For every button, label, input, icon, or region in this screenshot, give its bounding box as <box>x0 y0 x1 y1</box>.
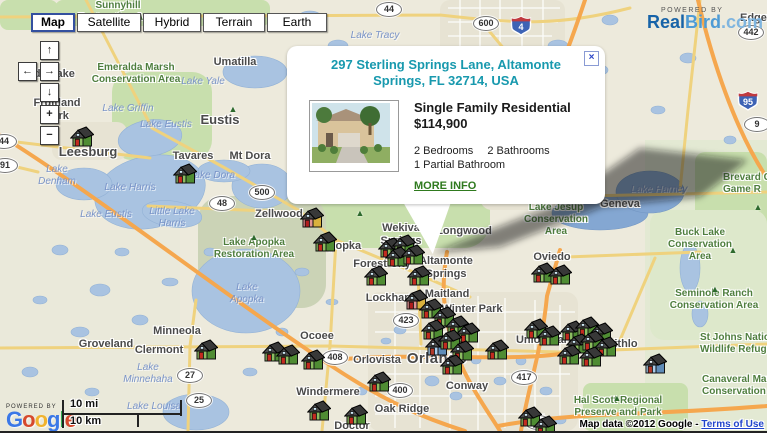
svg-text:95: 95 <box>743 97 753 107</box>
listing-marker[interactable] <box>579 346 603 370</box>
map-type-button-terrain[interactable]: Terrain <box>203 13 265 32</box>
map-type-button-earth[interactable]: Earth <box>267 13 327 32</box>
route-shield-408: 408 <box>322 350 348 365</box>
route-shield-25: 25 <box>186 393 212 408</box>
listing-marker[interactable] <box>301 349 325 373</box>
interstate-shield-95: 95 <box>738 90 759 116</box>
listing-marker[interactable] <box>643 353 667 377</box>
map-type-button-hybrid[interactable]: Hybrid <box>143 13 201 32</box>
listing-marker[interactable] <box>173 163 197 187</box>
pan-zoom-in-button[interactable]: + <box>40 105 59 124</box>
route-shield-500: 500 <box>249 185 275 200</box>
map-type-buttons: MapSatelliteHybridTerrainEarth <box>31 13 327 32</box>
listing-marker[interactable] <box>407 265 431 289</box>
listing-info: Single Family Residential $114,900 2 Bed… <box>414 100 571 194</box>
listing-bedrooms: 2 Bedrooms <box>414 145 473 157</box>
realbird-logo-real: Real <box>647 12 685 32</box>
listing-marker[interactable] <box>307 400 331 424</box>
realbird-logo-dotcom: .com <box>721 12 763 32</box>
listing-marker[interactable] <box>533 415 557 433</box>
listing-marker[interactable] <box>548 264 572 288</box>
listing-price: $114,900 <box>414 116 571 132</box>
route-shield-600: 600 <box>473 16 499 31</box>
pan-up-button[interactable]: ↑ <box>40 41 59 60</box>
scale-tick-right <box>180 400 182 416</box>
close-icon[interactable]: × <box>584 51 599 66</box>
google-logo-letter: G <box>6 407 22 432</box>
listing-partial-bath: 1 Partial Bathroom <box>414 158 571 172</box>
listing-marker[interactable] <box>300 207 324 231</box>
route-shield-423: 423 <box>393 313 419 328</box>
route-shield-44: 44 <box>376 2 402 17</box>
route-shield-417: 417 <box>511 370 537 385</box>
listing-bathrooms: 2 Bathrooms <box>487 145 549 157</box>
listing-marker[interactable] <box>440 354 464 378</box>
route-shield-27: 27 <box>177 368 203 383</box>
listing-marker[interactable] <box>70 126 94 150</box>
google-logo-letter: o <box>22 407 34 432</box>
google-logo-letter: o <box>35 407 47 432</box>
pan-right-button[interactable]: → <box>40 62 59 81</box>
listing-marker[interactable] <box>364 265 388 289</box>
scale-tick-km <box>137 413 139 427</box>
scale-km-label: 10 km <box>70 415 101 427</box>
route-shield-48: 48 <box>209 196 235 211</box>
map-type-button-satellite[interactable]: Satellite <box>77 13 141 32</box>
scale-miles-label: 10 mi <box>70 398 98 410</box>
listing-marker[interactable] <box>367 371 391 395</box>
map-attribution: Map data ©2012 Google - Terms of Use <box>580 419 764 430</box>
interstate-shield-4: 4 <box>511 15 532 41</box>
svg-text:4: 4 <box>518 22 523 32</box>
listing-property-type: Single Family Residential <box>414 100 571 116</box>
attribution-text: Map data ©2012 Google - <box>580 419 702 430</box>
listing-photo[interactable] <box>309 100 399 172</box>
listing-marker[interactable] <box>485 339 509 363</box>
listing-popup: × 297 Sterling Springs Lane, Altamonte S… <box>287 46 605 204</box>
pan-zoom-out-button[interactable]: − <box>40 126 59 145</box>
route-shield-9: 9 <box>744 117 767 132</box>
listing-marker[interactable] <box>276 344 300 368</box>
listing-body: Single Family Residential $114,900 2 Bed… <box>309 100 595 194</box>
realbird-branding[interactable]: POWERED BY RealBird.com <box>647 7 763 30</box>
scale-tick-left <box>62 400 64 428</box>
listing-marker[interactable] <box>344 404 368 428</box>
realbird-logo: RealBird.com <box>647 14 763 30</box>
scale-bar: 10 mi 10 km <box>62 400 182 428</box>
pan-left-button[interactable]: ← <box>18 62 37 81</box>
pan-down-button[interactable]: ↓ <box>40 83 59 102</box>
map-viewport[interactable]: MapSatelliteHybridTerrainEarth POWERED B… <box>0 0 767 433</box>
more-info-link[interactable]: MORE INFO <box>414 180 476 192</box>
listing-address: 297 Sterling Springs Lane, Altamonte Spr… <box>309 57 583 90</box>
listing-bed-bath: 2 Bedrooms2 Bathrooms <box>414 144 571 158</box>
listing-marker[interactable] <box>557 344 581 368</box>
map-type-button-map[interactable]: Map <box>31 13 75 32</box>
terms-of-use-link[interactable]: Terms of Use <box>701 419 764 430</box>
house-photo-image <box>312 103 390 163</box>
listing-marker[interactable] <box>194 339 218 363</box>
realbird-logo-bird: Bird <box>685 12 721 32</box>
google-logo-letter: g <box>47 407 59 432</box>
listing-marker[interactable] <box>313 231 337 255</box>
